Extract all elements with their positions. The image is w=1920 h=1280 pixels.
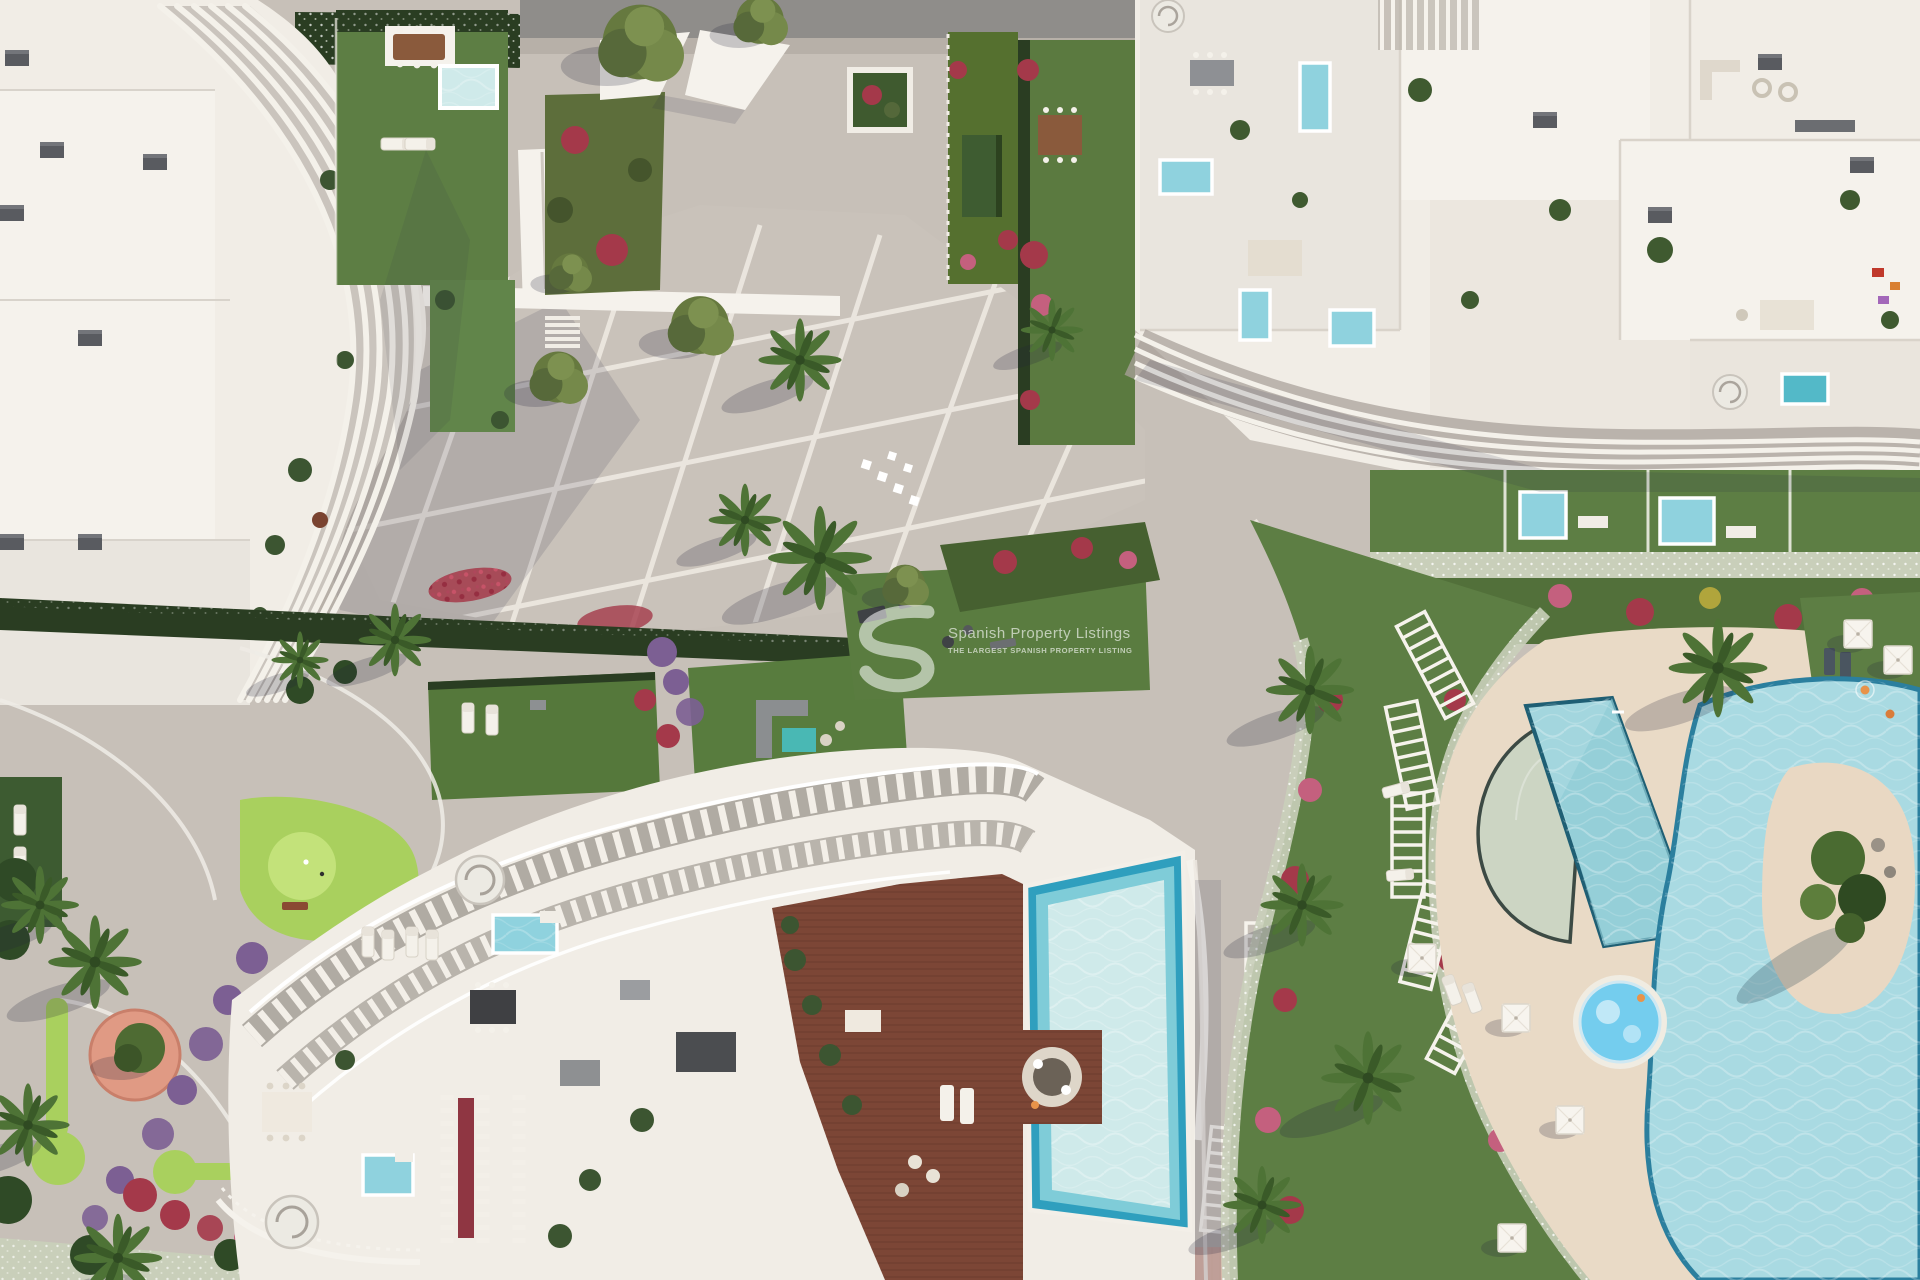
pergola-dark-roof — [676, 1032, 736, 1072]
watermark-line1: Spanish Property Listings — [948, 625, 1131, 642]
person-in-spa — [1637, 994, 1645, 1002]
plunge-pool — [1520, 492, 1566, 538]
outdoor-kitchen — [1795, 120, 1855, 132]
swimmer — [1886, 710, 1895, 719]
lagoon-pool-zone — [1185, 470, 1920, 1280]
spiral-staircase — [456, 856, 504, 904]
plunge-pool — [1660, 498, 1714, 544]
spiral-staircase — [266, 1196, 318, 1248]
person-sunbathing — [1031, 1101, 1039, 1109]
spiral-staircase — [1713, 375, 1747, 409]
dining-table-dark — [470, 990, 516, 1024]
flower-strip — [458, 1098, 474, 1238]
watermark-line2: THE LARGEST SPANISH PROPERTY LISTING — [948, 646, 1133, 655]
spa-pool — [1573, 975, 1667, 1069]
building-top-right — [990, 0, 1920, 472]
outdoor-rug — [782, 728, 816, 752]
dining-table — [262, 1092, 312, 1132]
golf-bench — [282, 902, 308, 910]
lawn-with-loungers — [428, 672, 660, 800]
aerial-render-stage: Spanish Property Listings THE LARGEST SP… — [0, 0, 1920, 1280]
outdoor-dining-table — [393, 34, 445, 60]
aerial-render: Spanish Property Listings THE LARGEST SP… — [0, 0, 1920, 1280]
main-roof-pool — [1002, 853, 1190, 1230]
spiral-staircase — [1152, 0, 1184, 32]
swimmer — [1861, 686, 1870, 695]
garden-dining-table — [1038, 115, 1082, 155]
putting-green-strip — [46, 998, 68, 1138]
